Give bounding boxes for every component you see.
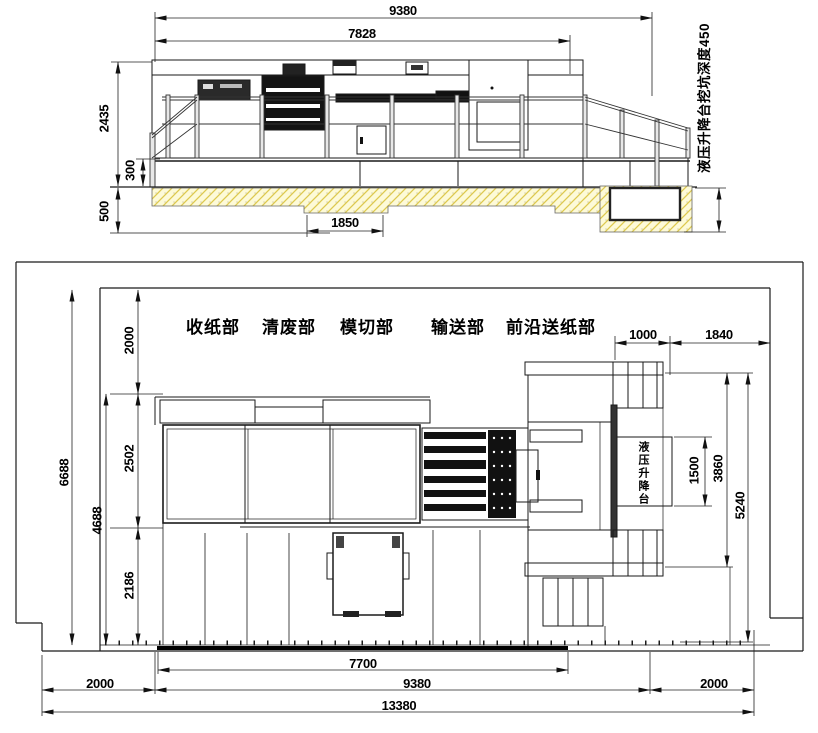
elevation-machine-body [150,60,690,187]
dim-plan-lift-zone: 3860 [711,447,726,491]
dim-plan-base-length: 7700 [333,656,393,671]
section-label-delivery: 收纸部 [178,313,248,338]
dim-plan-machine-depth: 4688 [90,499,105,543]
elevation-foundation [110,186,697,233]
dim-plan-lower-depth: 2186 [122,564,137,608]
dim-plan-overall-depth: 6688 [57,451,72,495]
dim-plan-feeder-ext: 1000 [613,327,673,342]
technical-drawing-canvas: 9380 7828 2435 300 500 1850 液压升降台挖坑深度450… [0,0,818,733]
dim-plan-machine-length: 9380 [387,676,447,691]
dim-elev-center-pit: 1850 [315,215,375,230]
dim-elev-base-height: 300 [123,149,138,193]
dim-plan-overall-length: 13380 [366,698,432,713]
dim-elev-overall-length: 9380 [373,3,433,18]
dim-plan-clearance-right: 2000 [684,676,744,691]
dim-elev-pit-depth: 500 [97,190,112,234]
section-label-transfer: 输送部 [423,313,493,338]
dim-plan-body-depth: 2502 [122,437,137,481]
plan-lower-band [100,523,770,650]
elevation-pit-note: 液压升降台挖坑深度450 [693,3,713,193]
lift-pit [610,188,680,220]
section-label-stripping: 清废部 [254,313,324,338]
section-label-feeder: 前沿送纸部 [503,313,599,338]
dim-plan-clearance-left: 2000 [70,676,130,691]
elevation-view [110,12,726,237]
section-label-diecut: 模切部 [332,313,402,338]
dim-elev-height: 2435 [97,97,112,141]
dim-plan-lift-width: 1500 [687,449,702,493]
plan-lower-cabinet [327,533,409,617]
dim-plan-corner: 1840 [689,327,749,342]
dim-plan-clearance-top: 2000 [122,319,137,363]
foundation-hatch-strip [152,188,607,213]
dim-plan-right-zone: 5240 [733,484,748,528]
lift-platform-label: 液压升降台 [637,441,648,503]
plan-transfer-unit [422,428,540,520]
plan-machine [100,362,770,650]
dim-elev-frame-length: 7828 [332,26,392,41]
plan-feeder-zone [525,362,730,648]
